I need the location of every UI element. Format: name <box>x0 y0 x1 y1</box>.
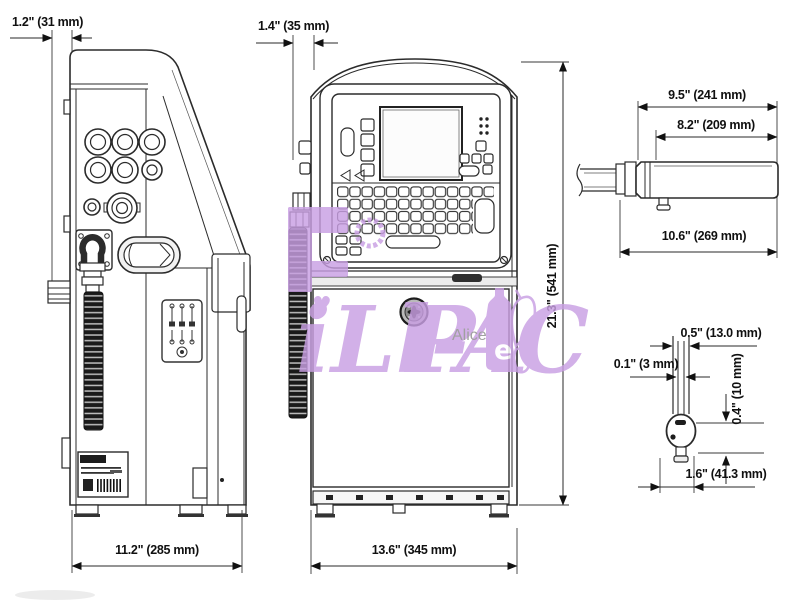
dimension-label: 1.2" (31 mm) <box>12 15 83 29</box>
dimension-label: 11.2" (285 mm) <box>115 543 199 557</box>
feet <box>74 505 248 517</box>
printhead-side-view: 9.5" (241 mm) 8.2" (209 mm) 10.6" (269 m… <box>577 88 778 258</box>
conduit-elbow <box>48 281 70 303</box>
drawing-canvas: 1.2" (31 mm) <box>0 0 800 600</box>
nozzle-slot <box>675 420 686 425</box>
printhead-tube <box>673 336 689 414</box>
dimension-label: 0.5" (13.0 mm) <box>681 326 762 340</box>
printhead-body <box>636 162 778 198</box>
product-label <box>78 452 128 497</box>
gutter-hole <box>670 434 675 439</box>
side-view: 1.2" (31 mm) <box>10 15 250 573</box>
dimension-label: 1.4" (35 mm) <box>258 19 329 33</box>
umbilical-tube <box>84 292 103 430</box>
dimension-label: 0.4" (10 mm) <box>730 353 744 424</box>
display-screen <box>380 107 462 180</box>
printer-dimensional-drawing: 1.2" (31 mm) <box>0 0 800 600</box>
dimension-label: 10.6" (269 mm) <box>662 229 747 243</box>
dimension-label: 1.6" (41.3 mm) <box>686 467 767 481</box>
connection-label <box>162 300 202 362</box>
handle-recess <box>118 237 180 273</box>
dimension-label: 9.5" (241 mm) <box>668 88 746 102</box>
watermark-bottle-letter: e <box>494 335 512 366</box>
printhead-face <box>667 415 696 463</box>
dimension-label: 0.1" (3 mm) <box>614 357 679 371</box>
printhead-front-view: 0.5" (13.0 mm) 0.1" (3 mm) 0.4" (10 mm) … <box>614 326 767 493</box>
dimension-label: 8.2" (209 mm) <box>677 118 755 132</box>
dimension-label: 13.6" (345 mm) <box>372 543 457 557</box>
watermark-alice-text: Alice <box>452 327 487 344</box>
spacebar-key <box>386 236 440 248</box>
feet <box>315 504 509 518</box>
artifact-smudge <box>15 590 95 600</box>
printhead-cable <box>577 162 636 196</box>
